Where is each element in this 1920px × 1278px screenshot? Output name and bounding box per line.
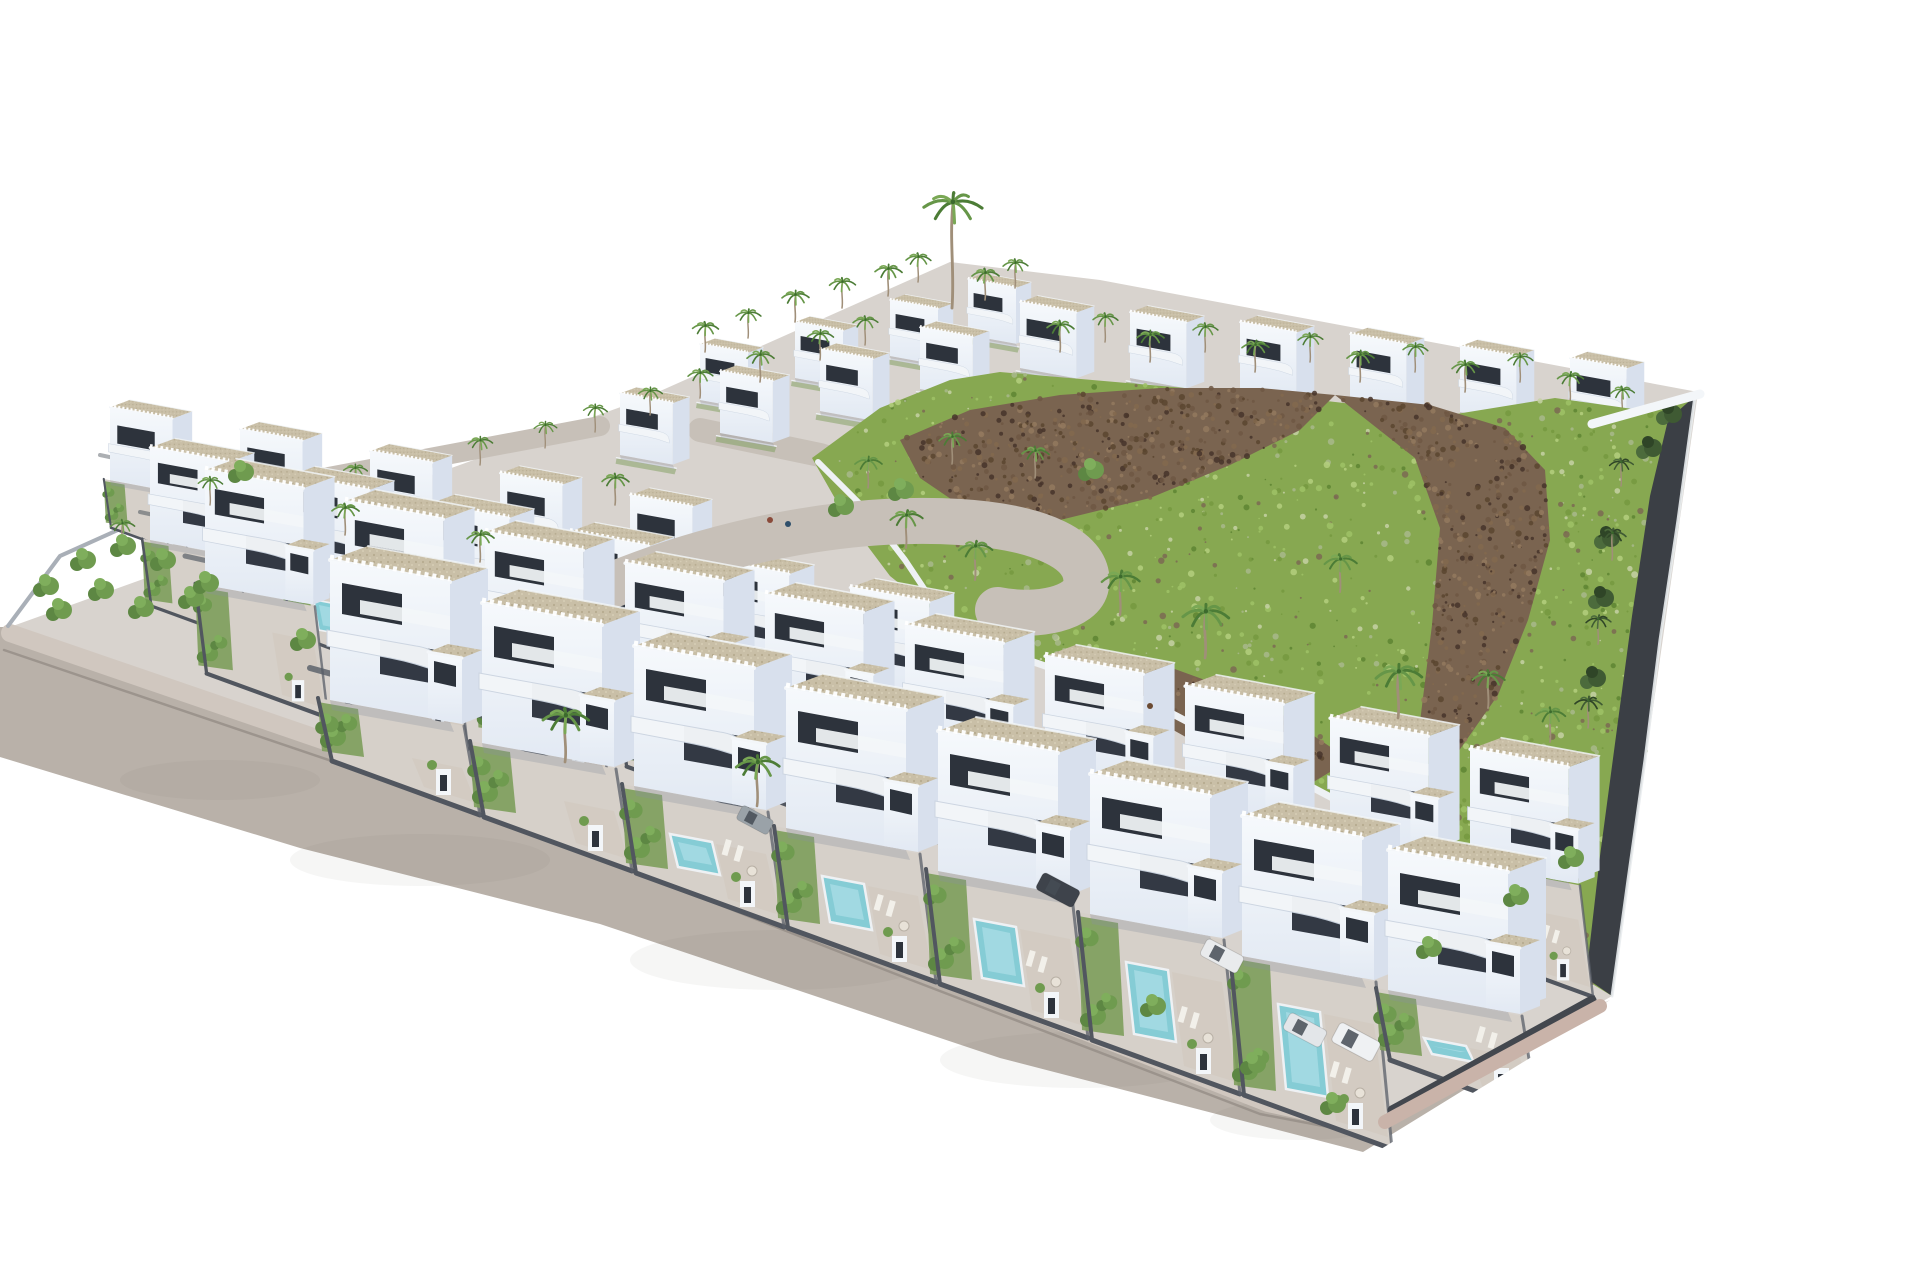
palm-frond	[748, 313, 756, 320]
annex-front	[285, 546, 313, 605]
dining-table	[899, 921, 909, 931]
palm-frond	[842, 282, 849, 290]
planter	[883, 927, 893, 937]
entrance-door	[1200, 1054, 1207, 1070]
palm-tree	[782, 290, 809, 322]
site	[0, 193, 1920, 1278]
palm-frond	[1015, 263, 1016, 272]
palm-crown	[782, 290, 809, 304]
palm-frond	[906, 256, 918, 260]
palm-frond	[210, 481, 211, 490]
dining-table	[747, 866, 757, 876]
planter	[1035, 983, 1045, 993]
dining-table	[1203, 1033, 1213, 1043]
annex-side	[1520, 940, 1540, 1014]
palm-frond	[796, 295, 805, 303]
palm-frond	[1622, 390, 1623, 399]
palm-frond	[1003, 262, 1015, 266]
villa	[923, 717, 1096, 1038]
palm-frond	[889, 269, 890, 279]
dining-table	[1355, 1088, 1365, 1098]
palm-frond	[1399, 672, 1401, 689]
palm-trunk	[1612, 534, 1613, 560]
planter	[285, 673, 293, 681]
palm-frond	[953, 203, 955, 223]
palm-tree	[736, 309, 761, 338]
villa	[1075, 760, 1248, 1094]
palm-frond	[565, 716, 566, 733]
palm-crown	[693, 322, 719, 336]
annex-side	[313, 544, 329, 605]
entrance-door	[1048, 998, 1055, 1014]
annex-front	[1486, 942, 1520, 1014]
palm-frond	[545, 425, 546, 433]
palm-crown	[736, 309, 761, 322]
villa-side-face	[673, 397, 690, 465]
palm-frond	[918, 257, 926, 264]
palm-crown	[875, 264, 902, 278]
palm-trunk	[1398, 674, 1399, 718]
entrance-door	[440, 775, 447, 791]
villa	[1227, 802, 1400, 1149]
annex-front	[1188, 866, 1222, 938]
entrance-door	[896, 942, 903, 958]
palm-trunk	[1621, 463, 1622, 486]
planter	[731, 872, 741, 882]
planter	[579, 816, 589, 826]
palm-frond	[1519, 357, 1520, 366]
palm-crown	[924, 193, 982, 223]
palm-tree	[830, 278, 856, 308]
person	[1147, 703, 1153, 709]
entrance-door	[1352, 1109, 1359, 1125]
palm-trunk	[480, 442, 481, 465]
road-mottle	[290, 834, 550, 886]
person	[767, 517, 773, 523]
bush	[110, 534, 136, 557]
palm-frond	[1149, 335, 1150, 345]
palm-frond	[830, 281, 843, 285]
palm-frond	[1621, 462, 1622, 471]
planter	[1187, 1039, 1197, 1049]
palm-frond	[1488, 676, 1489, 688]
dining-table	[1563, 947, 1571, 955]
villa	[616, 387, 690, 474]
annex-front	[732, 738, 766, 810]
planter	[427, 760, 437, 770]
annex-front	[884, 780, 918, 852]
palm-frond	[705, 326, 713, 334]
villa	[716, 365, 790, 452]
palm-frond	[736, 312, 748, 316]
villa-side-face	[773, 375, 790, 443]
entrance-door	[295, 685, 301, 698]
palm-trunk	[952, 205, 953, 309]
palm-trunk	[760, 356, 761, 382]
palm-frond	[842, 282, 843, 291]
bush	[33, 574, 59, 597]
palm-frond	[1036, 451, 1037, 461]
annex-front	[428, 652, 462, 724]
villa-side-face	[1076, 306, 1094, 378]
road-mottle	[120, 760, 320, 800]
entrance-door	[592, 831, 599, 847]
palm-trunk	[1465, 366, 1466, 392]
palm-frond	[1466, 365, 1467, 375]
entrance-door	[744, 887, 751, 903]
person	[785, 521, 791, 527]
render-canvas	[0, 0, 1920, 1278]
palm-frond	[1598, 619, 1599, 628]
entrance-door	[1560, 964, 1566, 977]
palm-frond	[595, 408, 603, 415]
aerial-render	[0, 0, 1920, 1278]
planter	[1550, 952, 1558, 960]
palm-trunk	[650, 392, 651, 415]
palm-frond	[1206, 612, 1207, 629]
palm-frond	[953, 437, 954, 447]
annex-front	[1340, 908, 1374, 980]
dining-table	[1051, 977, 1061, 987]
annex-front	[580, 695, 614, 767]
palm-frond	[935, 203, 953, 219]
